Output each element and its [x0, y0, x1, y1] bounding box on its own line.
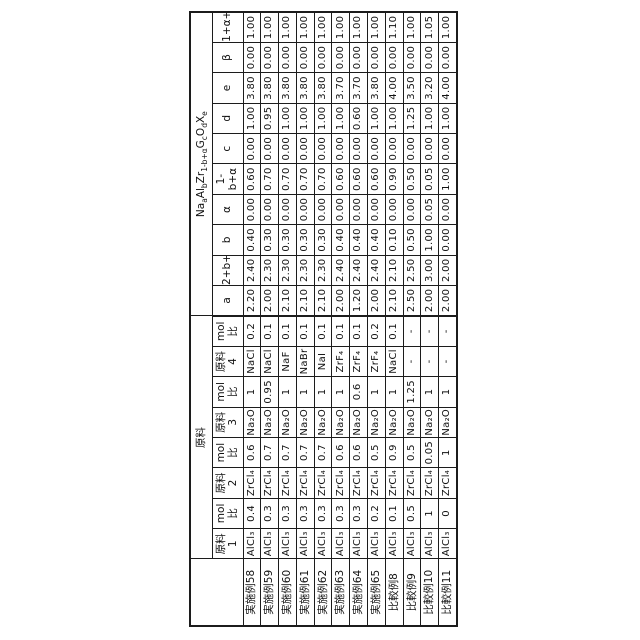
- column-header: e: [212, 73, 243, 103]
- cell: 1: [439, 437, 457, 467]
- cell: 0.3: [350, 498, 368, 528]
- cell: 0.00: [243, 134, 261, 164]
- cell: 1: [279, 377, 297, 407]
- cell: 1.05: [421, 12, 439, 42]
- cell: 0.00: [296, 42, 314, 72]
- column-header: d: [212, 103, 243, 133]
- cell: 0.2: [368, 316, 386, 346]
- cell: Na₂O: [385, 407, 403, 437]
- cell: 0.7: [279, 437, 297, 467]
- cell: NaCl: [261, 346, 279, 376]
- cell: 0.3: [279, 498, 297, 528]
- column-header: a: [212, 285, 243, 315]
- cell: 0.30: [279, 225, 297, 255]
- cell: 2.00: [261, 285, 279, 315]
- cell: 0.7: [314, 437, 332, 467]
- cell: 0.6: [350, 377, 368, 407]
- cell: 0.00: [261, 134, 279, 164]
- cell: 0.00: [279, 194, 297, 224]
- cell: 0.00: [368, 134, 386, 164]
- column-header: β: [212, 42, 243, 72]
- cell: 0.1: [279, 316, 297, 346]
- cell: Na₂O: [332, 407, 350, 437]
- cell: 3.80: [261, 73, 279, 103]
- cell: 0.6: [243, 437, 261, 467]
- cell: AlCl₃: [332, 529, 350, 559]
- cell: 3.70: [332, 73, 350, 103]
- cell: Na₂O: [261, 407, 279, 437]
- cell: 0.00: [332, 194, 350, 224]
- cell: 1.00: [279, 103, 297, 133]
- cell: 2.00: [439, 255, 457, 285]
- cell: 0.4: [243, 498, 261, 528]
- cell: 0.60: [350, 164, 368, 194]
- cell: 1: [368, 377, 386, 407]
- cell: ZrCl₄: [439, 468, 457, 498]
- table-row: 実施例61AlCl₃0.3ZrCl₄0.7Na₂O1NaBr0.12.102.3…: [296, 12, 314, 626]
- cell: NaI: [314, 346, 332, 376]
- cell: 2.20: [243, 285, 261, 315]
- cell: 2.30: [314, 255, 332, 285]
- cell: 0.95: [261, 103, 279, 133]
- cell: 1.00: [439, 164, 457, 194]
- cell: 1.00: [279, 12, 297, 42]
- cell: 0.00: [421, 134, 439, 164]
- column-header: mol比: [212, 437, 243, 467]
- cell: 0.1: [385, 316, 403, 346]
- column-header: 原料 4: [212, 346, 243, 376]
- cell: AlCl₃: [385, 529, 403, 559]
- cell: 0.40: [368, 225, 386, 255]
- cell: 0.2: [368, 498, 386, 528]
- group-header-formula: NaaAlbZr1-b+αGcOdXe: [190, 12, 212, 316]
- cell: ZrCl₄: [421, 468, 439, 498]
- cell: -: [421, 316, 439, 346]
- cell: -: [403, 346, 421, 376]
- cell: Na₂O: [314, 407, 332, 437]
- cell: 0.5: [368, 437, 386, 467]
- cell: 0.6: [350, 437, 368, 467]
- cell: 0.10: [385, 225, 403, 255]
- cell: 1.00: [403, 12, 421, 42]
- table-row: 実施例58AlCl₃0.4ZrCl₄0.6Na₂O1NaCl0.22.202.4…: [243, 12, 261, 626]
- cell: 0.00: [314, 42, 332, 72]
- cell: 3.50: [403, 73, 421, 103]
- cell: Na₂O: [296, 407, 314, 437]
- cell: 3.80: [243, 73, 261, 103]
- group-header-row: 原料 NaaAlbZr1-b+αGcOdXe: [190, 12, 212, 626]
- cell: 0.3: [261, 498, 279, 528]
- cell: 0.3: [332, 498, 350, 528]
- cell: 0.70: [279, 164, 297, 194]
- cell: 1.00: [439, 103, 457, 133]
- cell: 1: [385, 377, 403, 407]
- table-row: 比較例10AlCl₃1ZrCl₄0.05Na₂O1--2.003.001.000…: [421, 12, 439, 626]
- cell: 2.10: [296, 285, 314, 315]
- cell: 2.40: [368, 255, 386, 285]
- cell: ZrCl₄: [296, 468, 314, 498]
- cell: 0.05: [421, 164, 439, 194]
- row-label: 実施例64: [350, 559, 368, 626]
- cell: Na₂O: [421, 407, 439, 437]
- cell: 0: [439, 498, 457, 528]
- cell: ZrCl₄: [385, 468, 403, 498]
- cell: AlCl₃: [243, 529, 261, 559]
- cell: Na₂O: [279, 407, 297, 437]
- column-header: mol比: [212, 316, 243, 346]
- cell: 0.60: [332, 164, 350, 194]
- cell: 0.00: [350, 194, 368, 224]
- cell: Na₂O: [350, 407, 368, 437]
- cell: 0.00: [279, 134, 297, 164]
- cell: 0.00: [403, 42, 421, 72]
- cell: AlCl₃: [296, 529, 314, 559]
- cell: 1.00: [314, 103, 332, 133]
- cell: 1.00: [314, 12, 332, 42]
- cell: 0.00: [385, 42, 403, 72]
- cell: ZrCl₄: [350, 468, 368, 498]
- cell: 1.10: [385, 12, 403, 42]
- cell: NaCl: [385, 346, 403, 376]
- cell: 2.50: [403, 255, 421, 285]
- cell: 0.7: [296, 437, 314, 467]
- cell: -: [421, 346, 439, 376]
- cell: 0.00: [385, 134, 403, 164]
- cell: 1.25: [403, 103, 421, 133]
- cell: 2.10: [314, 285, 332, 315]
- cell: 1: [314, 377, 332, 407]
- cell: ZrCl₄: [314, 468, 332, 498]
- cell: AlCl₃: [421, 529, 439, 559]
- cell: 0.00: [243, 194, 261, 224]
- cell: 0.5: [403, 437, 421, 467]
- header-row: 原料 1mol比原料 2mol比原料 3mol比原料 4mol比a2+b+βbα…: [212, 12, 243, 626]
- cell: 2.00: [332, 285, 350, 315]
- cell: 2.50: [403, 285, 421, 315]
- cell: 3.20: [421, 73, 439, 103]
- table-row: 比較例11AlCl₃0ZrCl₄1Na₂O1--2.002.000.000.00…: [439, 12, 457, 626]
- cell: 1.00: [332, 103, 350, 133]
- cell: 1: [243, 377, 261, 407]
- cell: 0.6: [332, 437, 350, 467]
- cell: ZrF₄: [350, 346, 368, 376]
- table-row: 実施例59AlCl₃0.3ZrCl₄0.7Na₂O0.95NaCl0.12.00…: [261, 12, 279, 626]
- cell: 0.70: [296, 164, 314, 194]
- row-label: 比較例10: [421, 559, 439, 626]
- row-label: 実施例62: [314, 559, 332, 626]
- table-body: 実施例58AlCl₃0.4ZrCl₄0.6Na₂O1NaCl0.22.202.4…: [243, 12, 457, 626]
- cell: ZrCl₄: [403, 468, 421, 498]
- cell: 2.40: [350, 255, 368, 285]
- row-label: 比較例8: [385, 559, 403, 626]
- cell: 1.00: [296, 12, 314, 42]
- cell: 0.00: [368, 194, 386, 224]
- cell: 0.3: [314, 498, 332, 528]
- column-header: 1-b+α: [212, 164, 243, 194]
- column-header: c: [212, 134, 243, 164]
- cell: 0.2: [243, 316, 261, 346]
- cell: AlCl₃: [261, 529, 279, 559]
- cell: 4.00: [385, 73, 403, 103]
- cell: 1: [332, 377, 350, 407]
- cell: ZrCl₄: [261, 468, 279, 498]
- cell: 1.25: [403, 377, 421, 407]
- row-label: 実施例58: [243, 559, 261, 626]
- cell: 0.00: [296, 134, 314, 164]
- cell: -: [439, 316, 457, 346]
- cell: 2.00: [439, 285, 457, 315]
- cell: 1.00: [296, 103, 314, 133]
- cell: 0.7: [261, 437, 279, 467]
- cell: 3.80: [368, 73, 386, 103]
- cell: 2.00: [368, 285, 386, 315]
- cell: 0.1: [314, 316, 332, 346]
- cell: Na₂O: [403, 407, 421, 437]
- column-header: mol比: [212, 377, 243, 407]
- cell: 0.60: [350, 103, 368, 133]
- cell: 1: [439, 377, 457, 407]
- cell: 0.00: [403, 134, 421, 164]
- cell: 1.00: [439, 12, 457, 42]
- patent-data-table: 原料 NaaAlbZr1-b+αGcOdXe 原料 1mol比原料 2mol比原…: [189, 11, 458, 627]
- table-row: 実施例65AlCl₃0.2ZrCl₄0.5Na₂O1ZrF₄0.22.002.4…: [368, 12, 386, 626]
- cell: 0.40: [332, 225, 350, 255]
- table-row: 実施例64AlCl₃0.3ZrCl₄0.6Na₂O0.6ZrF₄0.11.202…: [350, 12, 368, 626]
- cell: 0.30: [261, 225, 279, 255]
- row-label: 実施例63: [332, 559, 350, 626]
- row-label: 実施例59: [261, 559, 279, 626]
- cell: 0.1: [350, 316, 368, 346]
- cell: 0.00: [439, 194, 457, 224]
- cell: AlCl₃: [439, 529, 457, 559]
- cell: ZrF₄: [368, 346, 386, 376]
- cell: ZrCl₄: [279, 468, 297, 498]
- cell: 0.70: [261, 164, 279, 194]
- cell: 0.90: [385, 164, 403, 194]
- table-row: 実施例62AlCl₃0.3ZrCl₄0.7Na₂O1NaI0.12.102.30…: [314, 12, 332, 626]
- cell: 1.00: [421, 225, 439, 255]
- table-row: 実施例63AlCl₃0.3ZrCl₄0.6Na₂O1ZrF₄0.12.002.4…: [332, 12, 350, 626]
- table-row: 比較例9AlCl₃0.5ZrCl₄0.5Na₂O1.25--2.502.500.…: [403, 12, 421, 626]
- cell: 2.10: [279, 285, 297, 315]
- column-header: mol比: [212, 498, 243, 528]
- cell: 1.00: [385, 103, 403, 133]
- table-row: 比較例8AlCl₃0.1ZrCl₄0.9Na₂O1NaCl0.12.102.10…: [385, 12, 403, 626]
- cell: 0.30: [314, 225, 332, 255]
- cell: 2.40: [332, 255, 350, 285]
- cell: 3.80: [296, 73, 314, 103]
- cell: 1.00: [368, 103, 386, 133]
- column-header: b: [212, 225, 243, 255]
- table-row: 実施例60AlCl₃0.3ZrCl₄0.7Na₂O1NaF0.12.102.30…: [279, 12, 297, 626]
- column-header: 1+α+c: [212, 12, 243, 42]
- cell: 1: [296, 377, 314, 407]
- cell: 2.30: [261, 255, 279, 285]
- cell: AlCl₃: [368, 529, 386, 559]
- row-label: 実施例60: [279, 559, 297, 626]
- cell: 0.95: [261, 377, 279, 407]
- cell: 1.00: [243, 103, 261, 133]
- cell: 0.00: [368, 42, 386, 72]
- cell: 3.00: [421, 255, 439, 285]
- row-label: 比較例11: [439, 559, 457, 626]
- cell: ZrCl₄: [243, 468, 261, 498]
- cell: 0.00: [332, 42, 350, 72]
- cell: 0.00: [439, 225, 457, 255]
- cell: 1.00: [261, 12, 279, 42]
- corner-cell: [190, 559, 243, 626]
- cell: 0.00: [279, 42, 297, 72]
- cell: AlCl₃: [314, 529, 332, 559]
- row-label: 実施例61: [296, 559, 314, 626]
- cell: 0.30: [296, 225, 314, 255]
- cell: 0.00: [350, 42, 368, 72]
- cell: 2.30: [279, 255, 297, 285]
- cell: 0.00: [314, 134, 332, 164]
- cell: 0.5: [403, 498, 421, 528]
- cell: 3.70: [350, 73, 368, 103]
- cell: 0.50: [403, 225, 421, 255]
- cell: ZrF₄: [332, 346, 350, 376]
- cell: 0.00: [439, 42, 457, 72]
- cell: Na₂O: [368, 407, 386, 437]
- row-label: 実施例65: [368, 559, 386, 626]
- cell: 3.80: [279, 73, 297, 103]
- cell: 2.30: [296, 255, 314, 285]
- cell: 0.9: [385, 437, 403, 467]
- column-header: 原料 1: [212, 529, 243, 559]
- cell: 0.1: [296, 316, 314, 346]
- cell: AlCl₃: [350, 529, 368, 559]
- cell: 0.00: [385, 194, 403, 224]
- cell: 1: [421, 377, 439, 407]
- cell: 1.00: [350, 12, 368, 42]
- rotated-table-container: 原料 NaaAlbZr1-b+αGcOdXe 原料 1mol比原料 2mol比原…: [189, 12, 456, 627]
- cell: 0.60: [243, 164, 261, 194]
- cell: 0.40: [350, 225, 368, 255]
- cell: 0.70: [314, 164, 332, 194]
- cell: NaCl: [243, 346, 261, 376]
- cell: AlCl₃: [279, 529, 297, 559]
- cell: 0.1: [385, 498, 403, 528]
- cell: Na₂O: [439, 407, 457, 437]
- cell: NaF: [279, 346, 297, 376]
- cell: ZrCl₄: [368, 468, 386, 498]
- cell: 0.00: [421, 42, 439, 72]
- cell: 0.60: [368, 164, 386, 194]
- cell: 0.00: [261, 42, 279, 72]
- page: 原料 NaaAlbZr1-b+αGcOdXe 原料 1mol比原料 2mol比原…: [0, 0, 640, 640]
- cell: 0.00: [332, 134, 350, 164]
- cell: 3.80: [314, 73, 332, 103]
- cell: 1.00: [368, 12, 386, 42]
- cell: 2.00: [421, 285, 439, 315]
- group-header-materials: 原料: [190, 316, 212, 559]
- cell: 0.00: [314, 194, 332, 224]
- cell: 4.00: [439, 73, 457, 103]
- cell: 0.40: [243, 225, 261, 255]
- cell: 0.00: [261, 194, 279, 224]
- cell: 0.00: [403, 194, 421, 224]
- column-header: 原料 3: [212, 407, 243, 437]
- cell: 0.1: [332, 316, 350, 346]
- cell: 0.00: [439, 134, 457, 164]
- cell: -: [403, 316, 421, 346]
- cell: 0.3: [296, 498, 314, 528]
- cell: 2.10: [385, 255, 403, 285]
- cell: AlCl₃: [403, 529, 421, 559]
- cell: 2.40: [243, 255, 261, 285]
- cell: Na₂O: [243, 407, 261, 437]
- cell: 0.50: [403, 164, 421, 194]
- cell: 0.1: [261, 316, 279, 346]
- column-header: α: [212, 194, 243, 224]
- cell: 0.00: [350, 134, 368, 164]
- cell: ZrCl₄: [332, 468, 350, 498]
- cell: 1: [421, 498, 439, 528]
- cell: -: [439, 346, 457, 376]
- cell: 0.00: [243, 42, 261, 72]
- cell: 1.00: [421, 103, 439, 133]
- column-header: 原料 2: [212, 468, 243, 498]
- cell: 0.05: [421, 437, 439, 467]
- cell: 2.10: [385, 285, 403, 315]
- cell: NaBr: [296, 346, 314, 376]
- cell: 1.00: [243, 12, 261, 42]
- column-header: 2+b+β: [212, 255, 243, 285]
- cell: 1.20: [350, 285, 368, 315]
- cell: 0.00: [296, 194, 314, 224]
- row-label: 比較例9: [403, 559, 421, 626]
- cell: 1.00: [332, 12, 350, 42]
- cell: 0.05: [421, 194, 439, 224]
